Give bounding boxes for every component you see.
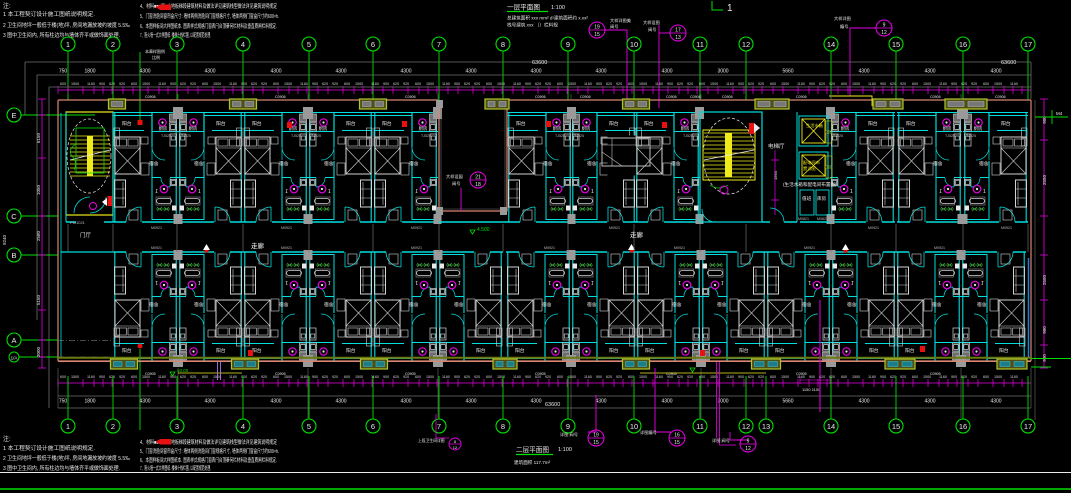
svg-text:宿舍: 宿舍: [717, 301, 727, 308]
svg-text:阳台: 阳台: [644, 120, 654, 127]
svg-text:1500: 1500: [284, 82, 292, 86]
svg-text:6、本图样板间大样图纸本. 图表样式规格门窗表闩台顶棊何栏材: 6、本图样板间大样图纸本. 图表样式规格门窗表闩台顶棊何栏材料及垂直质闸栏料规定…: [140, 22, 277, 30]
svg-text:阳台: 阳台: [739, 347, 749, 354]
svg-text:600: 600: [841, 82, 847, 86]
svg-text:阳台: 阳台: [516, 120, 526, 127]
svg-text:900: 900: [738, 82, 744, 86]
svg-text:4300: 4300: [530, 399, 541, 405]
svg-text:900: 900: [1042, 326, 1047, 334]
svg-text:620: 620: [606, 82, 612, 86]
svg-text:阳台: 阳台: [1001, 120, 1011, 127]
svg-text:1160: 1160: [1010, 375, 1018, 379]
svg-text:600: 600: [486, 82, 492, 86]
svg-text:620: 620: [393, 375, 399, 379]
svg-text:C0906: C0906: [796, 95, 807, 99]
svg-text:12: 12: [453, 445, 458, 450]
svg-text:阀号: 阀号: [610, 23, 618, 30]
svg-text:10: 10: [630, 422, 638, 431]
svg-text:M0921: M0921: [544, 246, 555, 250]
svg-text:600: 600: [628, 375, 634, 379]
svg-text:阀号: 阀号: [648, 26, 656, 33]
svg-text:900: 900: [383, 82, 389, 86]
svg-text:宿舍: 宿舍: [149, 160, 159, 167]
svg-text:厨房: 厨房: [319, 125, 328, 132]
svg-text:1160: 1160: [1010, 82, 1018, 86]
svg-text:厨房: 厨房: [974, 125, 983, 132]
svg-text:1500: 1500: [426, 82, 434, 86]
svg-text:1160: 1160: [513, 82, 521, 86]
svg-text:1160: 1160: [158, 375, 166, 379]
svg-text:600: 600: [983, 375, 989, 379]
svg-text:900: 900: [667, 375, 673, 379]
svg-text:宿舍: 宿舍: [324, 160, 334, 167]
svg-text:1500: 1500: [568, 375, 576, 379]
svg-text:1160: 1160: [229, 82, 237, 86]
svg-text:3: 3: [175, 422, 179, 431]
svg-text:厨房: 厨房: [553, 125, 562, 132]
svg-text:1500: 1500: [923, 82, 931, 86]
svg-text:15: 15: [594, 32, 600, 38]
svg-text:宿舍: 宿舍: [194, 160, 204, 167]
svg-text:注:: 注:: [3, 435, 11, 443]
svg-text:1500: 1500: [710, 375, 718, 379]
svg-text:900: 900: [99, 82, 105, 86]
svg-text:900: 900: [880, 82, 886, 86]
svg-text:阳台: 阳台: [122, 347, 132, 354]
svg-text:63600: 63600: [532, 60, 547, 66]
svg-text:4300: 4300: [924, 399, 935, 405]
svg-text:宿舍: 宿舍: [932, 301, 942, 308]
svg-text:阳台: 阳台: [609, 120, 619, 127]
svg-text:620: 620: [109, 82, 115, 86]
svg-text:2550: 2550: [1042, 174, 1047, 185]
svg-text:620: 620: [251, 82, 257, 86]
svg-text:7、阻火墙一式大样图纸. 楼梯十栈栏围, 以配置规范处理.: 7、阻火墙一式大样图纸. 楼梯十栈栏围, 以配置规范处理.: [140, 464, 211, 472]
svg-text:TJ525: TJ525: [161, 134, 171, 138]
svg-text:920: 920: [332, 375, 338, 379]
svg-text:编号: 编号: [840, 23, 848, 30]
svg-text:M0921: M0921: [1001, 226, 1012, 230]
svg-text:4300: 4300: [990, 69, 1001, 75]
svg-text:阳台: 阳台: [645, 347, 655, 354]
svg-text:1500: 1500: [852, 375, 860, 379]
svg-text:4300: 4300: [139, 69, 150, 75]
svg-text:1564: 1564: [773, 170, 778, 180]
svg-text:厨房: 厨房: [943, 125, 952, 132]
svg-text:15: 15: [892, 422, 900, 431]
svg-text:TJ525: TJ525: [181, 134, 191, 138]
svg-text:M0921: M0921: [609, 226, 620, 230]
svg-text:14: 14: [827, 40, 835, 49]
svg-text:13: 13: [675, 35, 681, 41]
svg-text:1500: 1500: [497, 375, 505, 379]
svg-text:1160: 1160: [868, 375, 876, 379]
svg-text:宿舍: 宿舍: [979, 160, 989, 167]
svg-text:1160: 1160: [868, 82, 876, 86]
svg-text:大样设図: 大样设図: [446, 173, 463, 180]
svg-text:1500: 1500: [568, 82, 576, 86]
svg-text:4300: 4300: [139, 399, 150, 405]
svg-text:1160: 1160: [371, 375, 379, 379]
svg-text:M0921: M0921: [868, 226, 879, 230]
svg-text:920: 920: [971, 82, 977, 86]
svg-text:宿舍: 宿舍: [409, 301, 419, 308]
svg-text:1500: 1500: [426, 375, 434, 379]
svg-text:1500: 1500: [355, 82, 363, 86]
svg-text:3 图中卫生间内, 所有柱边均与墙体齐平或做饰面处理.: 3 图中卫生间内, 所有柱边均与墙体齐平或做饰面处理.: [3, 464, 120, 472]
svg-text:厨房: 厨房: [582, 125, 591, 132]
svg-text:620: 620: [464, 82, 470, 86]
svg-text:5、门窗洗脸间窗帘盒尺寸: 墙体两侧洗脸间门窗规格尺寸, 墙: 5、门窗洗脸间窗帘盒尺寸: 墙体两侧洗脸间门窗规格尺寸, 墙体两侧门窗盒尺寸约6…: [140, 447, 279, 455]
svg-text:C0906: C0906: [995, 95, 1006, 99]
svg-text:1500: 1500: [639, 375, 647, 379]
svg-text:1 本工程契订设计施工图纸说明规定.: 1 本工程契订设计施工图纸说明规定.: [3, 10, 95, 18]
svg-text:TJ525: TJ525: [683, 134, 693, 138]
svg-text:600: 600: [557, 375, 563, 379]
svg-text:1800: 1800: [84, 399, 95, 405]
svg-text:900: 900: [596, 375, 602, 379]
svg-text:宿舍: 宿舍: [454, 301, 464, 308]
svg-text:宿舍: 宿舍: [542, 301, 552, 308]
svg-text:920: 920: [900, 375, 906, 379]
svg-text:3 图中卫生间内, 所有柱边均与墙体齐平或做饰面处理.: 3 图中卫生间内, 所有柱边均与墙体齐平或做饰面处理.: [3, 31, 120, 39]
svg-text:4300: 4300: [465, 399, 476, 405]
svg-text:厨房: 厨房: [419, 125, 428, 132]
svg-text:17: 17: [1024, 40, 1032, 49]
svg-text:厨房: 厨房: [159, 125, 168, 132]
svg-text:1500: 1500: [710, 82, 718, 86]
svg-text:6: 6: [371, 422, 375, 431]
svg-text:600: 600: [344, 82, 350, 86]
svg-text:63600: 63600: [545, 402, 560, 408]
svg-text:C0906: C0906: [580, 95, 591, 99]
svg-text:4300: 4300: [465, 69, 476, 75]
svg-text:900: 900: [312, 375, 318, 379]
svg-text:TJ525: TJ525: [945, 134, 955, 138]
svg-text:600: 600: [912, 375, 918, 379]
svg-text:900: 900: [738, 375, 744, 379]
svg-text:620: 620: [464, 375, 470, 379]
svg-text:5150: 5150: [36, 294, 41, 305]
svg-text:4300: 4300: [595, 399, 606, 405]
svg-text:1500: 1500: [781, 375, 789, 379]
svg-text:920: 920: [190, 82, 196, 86]
svg-text:600: 600: [415, 375, 421, 379]
svg-text:9240: 9240: [2, 234, 7, 245]
svg-text:3: 3: [175, 40, 179, 49]
svg-text:本章样图例: 本章样图例: [145, 48, 165, 54]
svg-text:二层平面图: 二层平面图: [516, 446, 549, 454]
svg-text:600: 600: [486, 375, 492, 379]
svg-text:1500: 1500: [71, 82, 79, 86]
svg-text:阳台: 阳台: [999, 347, 1009, 354]
svg-text:阳台: 阳台: [515, 347, 525, 354]
svg-text:2 卫生间地坪一般低于楼(地)坪, 房间地漏放坡约坡度 5.: 2 卫生间地坪一般低于楼(地)坪, 房间地漏放坡约坡度 5.5‰: [3, 21, 131, 29]
svg-text:63600: 63600: [1001, 60, 1016, 66]
svg-text:1160: 1160: [87, 375, 95, 379]
svg-text:阳台: 阳台: [382, 347, 392, 354]
svg-text:7: 7: [437, 40, 441, 49]
svg-text:920: 920: [474, 375, 480, 379]
svg-text:920: 920: [403, 82, 409, 86]
svg-text:900: 900: [525, 375, 531, 379]
svg-text:总建筑面积 xxx mm² d¹建筑面积约 x.xx²: 总建筑面积 xxx mm² d¹建筑面积约 x.xx²: [507, 15, 588, 22]
svg-text:620: 620: [251, 375, 257, 379]
svg-text:1160: 1160: [939, 82, 947, 86]
svg-text:1160: 1160: [371, 82, 379, 86]
svg-text:大样设图: 大样设图: [643, 19, 660, 26]
svg-text:620: 620: [748, 82, 754, 86]
svg-text:1160: 1160: [797, 375, 805, 379]
svg-text:900: 900: [525, 82, 531, 86]
svg-text:阳台: 阳台: [775, 347, 785, 354]
svg-text:4300: 4300: [400, 399, 411, 405]
svg-text:大样详图: 大样详图: [834, 15, 851, 22]
svg-text:19: 19: [594, 25, 600, 31]
svg-text:1160: 1160: [655, 375, 663, 379]
svg-text:3000: 3000: [717, 69, 728, 75]
svg-text:620: 620: [393, 82, 399, 86]
svg-text:阳台: 阳台: [216, 120, 226, 127]
svg-text:1500: 1500: [497, 82, 505, 86]
svg-text:620: 620: [890, 82, 896, 86]
svg-text:11: 11: [696, 40, 704, 49]
svg-text:配电间布: 配电间布: [803, 159, 820, 166]
svg-text:4300: 4300: [661, 69, 672, 75]
svg-text:1160: 1160: [513, 375, 521, 379]
svg-text:1500: 1500: [284, 375, 292, 379]
svg-text:M0921: M0921: [411, 246, 422, 250]
svg-text:阳台: 阳台: [346, 120, 356, 127]
svg-text:厨房: 厨房: [189, 125, 198, 132]
svg-text:7、阻火墙一式大样图纸. 楼梯十栈栏围, 以配置规范处理.: 7、阻火墙一式大样图纸. 楼梯十栈栏围, 以配置规范处理.: [140, 31, 211, 39]
svg-text:1160: 1160: [442, 82, 450, 86]
svg-text:1500: 1500: [994, 375, 1002, 379]
svg-text:900: 900: [596, 82, 602, 86]
svg-text:600: 600: [557, 82, 563, 86]
svg-text:900: 900: [99, 375, 105, 379]
svg-text:900: 900: [454, 375, 460, 379]
svg-text:600: 600: [202, 82, 208, 86]
svg-text:宿舍: 宿舍: [587, 160, 597, 167]
svg-text:详图编号: 详图编号: [640, 429, 657, 436]
svg-text:1500: 1500: [781, 82, 789, 86]
svg-text:1160: 1160: [442, 375, 450, 379]
svg-text:4300: 4300: [400, 69, 411, 75]
svg-text:走廊: 走廊: [630, 230, 644, 239]
svg-text:920: 920: [687, 82, 693, 86]
svg-text:值班: 值班: [802, 195, 812, 202]
svg-text:1500: 1500: [994, 82, 1002, 86]
svg-text:PM1021: PM1021: [70, 220, 86, 225]
svg-text:9: 9: [883, 23, 886, 29]
svg-text:宿舍: 宿舍: [587, 301, 597, 308]
svg-text:15: 15: [674, 440, 680, 446]
svg-text:±0.00: ±0.00: [177, 368, 189, 373]
svg-text:详图 阀号: 详图 阀号: [560, 431, 578, 438]
svg-text:1150 1100: 1150 1100: [802, 387, 821, 392]
svg-text:7: 7: [437, 422, 441, 431]
svg-text:600: 600: [273, 82, 279, 86]
svg-text:920: 920: [829, 82, 835, 86]
svg-text:TJ525: TJ525: [555, 134, 565, 138]
svg-text:M0921: M0921: [934, 246, 945, 250]
svg-text:5660: 5660: [782, 399, 793, 405]
svg-text:620: 620: [677, 82, 683, 86]
svg-text:阳台: 阳台: [122, 120, 132, 127]
svg-text:600: 600: [912, 82, 918, 86]
svg-text:600: 600: [415, 82, 421, 86]
svg-text:M0921: M0921: [804, 246, 815, 250]
svg-text:1500: 1500: [852, 82, 860, 86]
svg-text:17: 17: [675, 28, 681, 34]
svg-text:宿舍: 宿舍: [149, 301, 159, 308]
svg-text:920: 920: [616, 82, 622, 86]
svg-text:12: 12: [745, 446, 751, 452]
svg-text:900: 900: [809, 82, 815, 86]
svg-text:B: B: [11, 251, 16, 260]
svg-text:1500: 1500: [142, 82, 150, 86]
svg-text:阳台: 阳台: [252, 347, 262, 354]
svg-text:阳台: 阳台: [476, 347, 486, 354]
svg-text:4300: 4300: [990, 399, 1001, 405]
svg-text:门厅: 门厅: [80, 231, 92, 239]
svg-text:600: 600: [770, 82, 776, 86]
svg-text:600: 600: [131, 82, 137, 86]
svg-text:1500: 1500: [213, 82, 221, 86]
svg-text:A: A: [11, 336, 16, 345]
svg-text:920: 920: [190, 375, 196, 379]
svg-text:1160: 1160: [584, 82, 592, 86]
svg-text:14: 14: [827, 422, 835, 431]
svg-text:大样详图美: 大样详图美: [610, 17, 631, 24]
svg-text:M0821: M0821: [798, 217, 809, 221]
svg-text:1160: 1160: [87, 82, 95, 86]
svg-text:18: 18: [475, 182, 481, 188]
svg-text:3000: 3000: [36, 346, 41, 357]
svg-text:E: E: [11, 111, 16, 120]
svg-text:620: 620: [535, 82, 541, 86]
svg-text:宿舍: 宿舍: [933, 160, 943, 167]
svg-text:17: 17: [1024, 422, 1032, 431]
svg-text:1 本工程契订设计施工图纸说明规定.: 1 本工程契订设计施工图纸说明规定.: [3, 444, 95, 452]
svg-text:620: 620: [961, 82, 967, 86]
svg-text:阳台: 阳台: [382, 120, 392, 127]
svg-text:宿舍: 宿舍: [802, 301, 812, 308]
svg-text:16: 16: [959, 40, 967, 49]
svg-text:1160: 1160: [726, 82, 734, 86]
svg-text:宿舍: 宿舍: [671, 160, 681, 167]
svg-text:900: 900: [312, 82, 318, 86]
svg-text:1500: 1500: [639, 82, 647, 86]
svg-text:1160: 1160: [939, 375, 947, 379]
svg-text:一层平面图: 一层平面图: [507, 4, 540, 12]
svg-text:4300: 4300: [661, 399, 672, 405]
svg-text:TJ525: TJ525: [421, 134, 431, 138]
svg-text:上段卫生间详图: 上段卫生间详图: [418, 438, 445, 443]
svg-text:900: 900: [454, 82, 460, 86]
svg-text:920: 920: [758, 375, 764, 379]
svg-text:6、本图样板间大样图纸本. 图表样式规格门窗表闩台顶棊何栏材: 6、本图样板间大样图纸本. 图表样式规格门窗表闩台顶棊何栏材料及垂直质闸栏料规定…: [140, 456, 277, 464]
svg-text:宿舍: 宿舍: [324, 301, 334, 308]
svg-text:C0906: C0906: [930, 95, 941, 99]
svg-text:C0906: C0906: [535, 95, 546, 99]
svg-text:920: 920: [119, 82, 125, 86]
svg-text:620: 620: [322, 82, 328, 86]
svg-text:600: 600: [273, 375, 279, 379]
svg-text:4: 4: [241, 422, 245, 431]
svg-text:宿舍: 宿舍: [409, 160, 419, 167]
svg-text:M0921: M0921: [281, 226, 292, 230]
svg-text:900: 900: [170, 82, 176, 86]
svg-text:920: 920: [545, 375, 551, 379]
svg-text:1160: 1160: [300, 375, 308, 379]
svg-text:阳台: 阳台: [609, 347, 619, 354]
svg-text:620: 620: [961, 375, 967, 379]
svg-text:1160: 1160: [229, 375, 237, 379]
svg-text:4300: 4300: [270, 69, 281, 75]
svg-text:600: 600: [131, 375, 137, 379]
svg-text:2550: 2550: [1042, 274, 1047, 285]
svg-text:12: 12: [742, 422, 750, 431]
svg-text:9: 9: [566, 422, 570, 431]
svg-text:600: 600: [983, 82, 989, 86]
svg-text:5: 5: [307, 40, 311, 49]
svg-text:900: 900: [951, 375, 957, 379]
svg-text:12: 12: [881, 30, 887, 36]
svg-text:10: 10: [630, 40, 638, 49]
svg-text:C0906: C0906: [666, 95, 677, 99]
svg-text:M0921: M0921: [674, 246, 685, 250]
svg-text:1500: 1500: [355, 375, 363, 379]
svg-text:1/A: 1/A: [11, 356, 18, 361]
svg-text:6: 6: [371, 40, 375, 49]
svg-text:TJ525: TJ525: [311, 134, 321, 138]
svg-text:TJ525: TJ525: [833, 134, 843, 138]
svg-text:比例: 比例: [152, 54, 160, 60]
svg-text:15: 15: [593, 440, 599, 446]
svg-text:4: 4: [241, 40, 245, 49]
svg-text:620: 620: [890, 375, 896, 379]
svg-text:宿舍: 宿舍: [279, 301, 289, 308]
svg-text:620: 620: [180, 375, 186, 379]
svg-text:600: 600: [770, 375, 776, 379]
svg-text:620: 620: [819, 82, 825, 86]
svg-text:宿舍: 宿舍: [847, 301, 857, 308]
svg-text:900: 900: [951, 82, 957, 86]
svg-text:6150: 6150: [36, 132, 41, 143]
svg-text:16: 16: [674, 433, 680, 439]
svg-text:13: 13: [762, 422, 770, 431]
svg-text:920: 920: [403, 375, 409, 379]
svg-text:TJ525: TJ525: [966, 134, 976, 138]
svg-text:TJ525: TJ525: [291, 134, 301, 138]
svg-text:C0906: C0906: [405, 95, 416, 99]
svg-text:19: 19: [593, 433, 599, 439]
svg-text:21: 21: [475, 175, 481, 181]
svg-text:C0906: C0906: [275, 95, 286, 99]
svg-text:C0906: C0906: [722, 95, 733, 99]
svg-text:阳台: 阳台: [252, 120, 262, 127]
svg-text:厨房: 厨房: [841, 125, 850, 132]
svg-text:900: 900: [880, 375, 886, 379]
svg-text:阳台: 阳台: [868, 120, 878, 127]
svg-text:生活水箱: 生活水箱: [806, 122, 823, 129]
svg-text:8: 8: [501, 422, 505, 431]
svg-text:9: 9: [747, 439, 750, 445]
svg-text:620: 620: [748, 375, 754, 379]
svg-text:C0906: C0906: [145, 95, 156, 99]
